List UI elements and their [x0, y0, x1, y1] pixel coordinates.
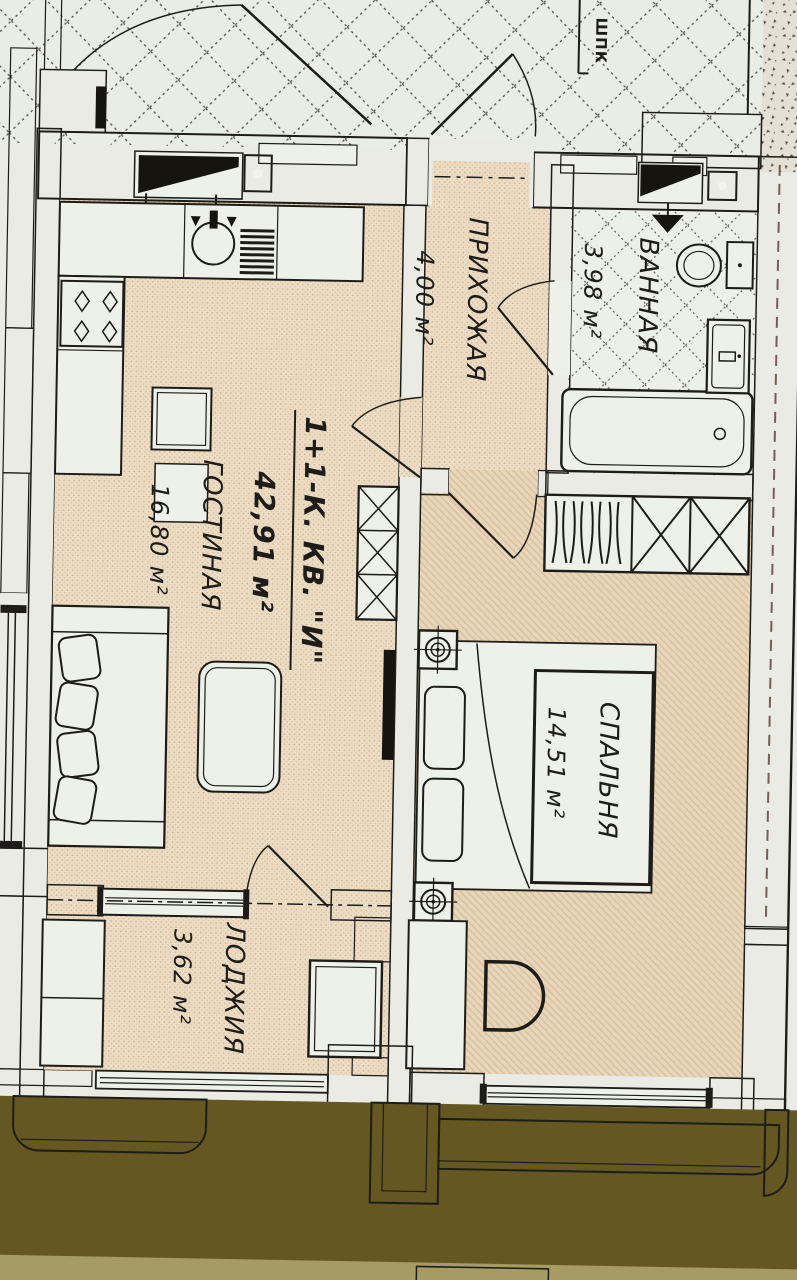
sofa-pillow	[58, 634, 102, 683]
living-area: 16,80 м²	[144, 483, 174, 596]
column-symbol	[413, 625, 462, 674]
living-loggia-window	[101, 889, 247, 918]
bedroom-wardrobe-icon	[544, 495, 749, 575]
toilet-icon	[677, 244, 722, 287]
entrance-threshold	[432, 161, 530, 208]
bed-pillow	[422, 778, 463, 861]
wall-lintel	[259, 143, 357, 165]
window-cap	[0, 605, 26, 613]
bedroom-door-opening	[449, 469, 538, 497]
bedroom-label: СПАЛЬНЯ	[591, 702, 624, 840]
bed-pillow	[424, 687, 465, 770]
outside-area	[0, 1095, 797, 1280]
bathroom-area: 3,98 м²	[578, 243, 608, 339]
bathroom-door-opening	[548, 281, 572, 375]
living-wardrobe-icon	[356, 486, 398, 620]
loggia-storage-box	[308, 960, 382, 1057]
hallway-area: 4,00 м²	[409, 250, 439, 346]
sofa-pillow	[55, 681, 99, 730]
living-label: ГОСТИНАЯ	[194, 459, 227, 611]
bathroom-label: ВАННАЯ	[631, 237, 663, 354]
hallway-label: ПРИХОЖАЯ	[460, 217, 493, 382]
door-jamb	[406, 138, 429, 205]
sofa-icon	[48, 606, 168, 848]
floor-plan-svg: ШПК ПРИХОЖАЯ 4,00 м² ВАННАЯ 3,98 м² 1+1-…	[0, 0, 797, 1280]
bedroom-cabinet	[406, 920, 467, 1069]
floor-plan-photo: ШПК ПРИХОЖАЯ 4,00 м² ВАННАЯ 3,98 м² 1+1-…	[0, 0, 797, 1280]
stove-icon	[60, 281, 123, 347]
coffee-table-icon	[197, 661, 281, 792]
window-cap	[97, 887, 104, 917]
niche-mark	[95, 86, 106, 128]
bathtub-icon	[561, 389, 752, 474]
bedroom-area: 14,51 м²	[541, 707, 571, 820]
sofa-pillow	[56, 730, 99, 778]
loggia-cabinet	[40, 920, 105, 1067]
loggia-label: ЛОДЖИЯ	[217, 922, 249, 1055]
armchair-back	[485, 970, 486, 1022]
sofa-pillow	[52, 775, 97, 825]
apartment-total-area: 42,91 м²	[245, 470, 281, 613]
apartment-title: 1+1-К. КВ. "И"	[295, 416, 333, 665]
washer-handle	[719, 352, 735, 361]
dining-table-icon	[151, 387, 211, 450]
corridor-cabinet-label: ШПК	[592, 17, 611, 64]
column-symbol	[409, 877, 458, 926]
kitchen-sink-icon	[192, 222, 235, 265]
loggia-area: 3,62 м²	[167, 929, 197, 1025]
faucet-icon	[210, 210, 218, 228]
concrete-corner	[761, 0, 797, 173]
